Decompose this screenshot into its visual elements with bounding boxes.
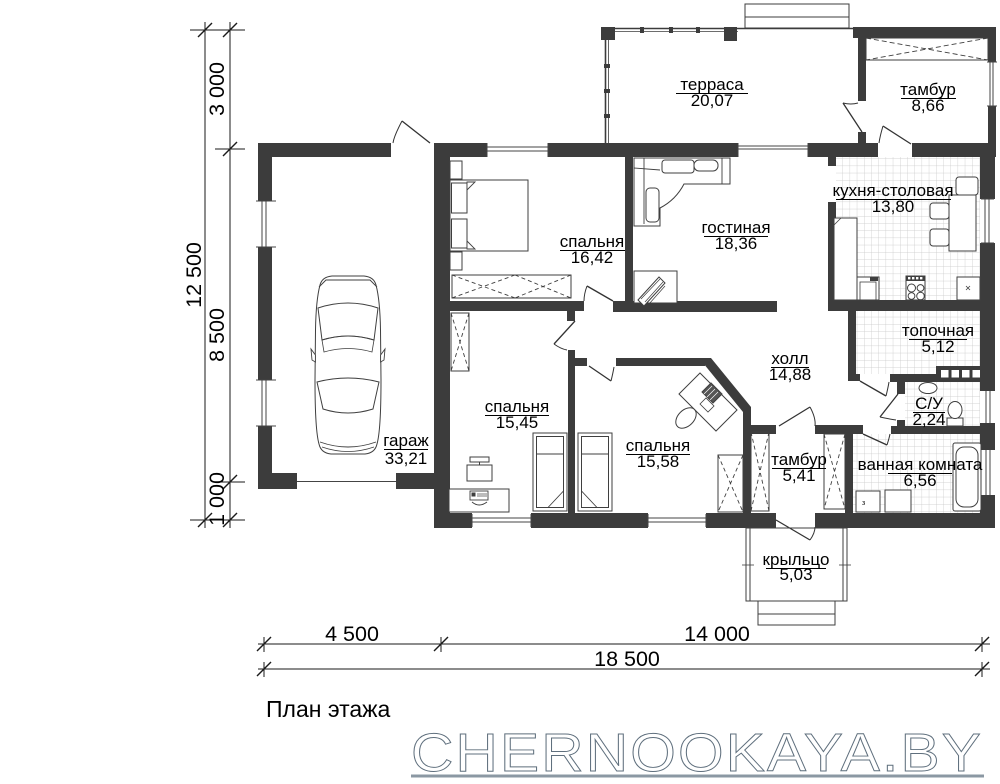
- svg-text:8,66: 8,66: [911, 96, 944, 115]
- svg-text:гараж: гараж: [383, 431, 429, 450]
- svg-text:3 000: 3 000: [205, 62, 229, 116]
- svg-text:2,24: 2,24: [912, 410, 945, 429]
- svg-text:18,36: 18,36: [715, 234, 758, 253]
- svg-text:14 000: 14 000: [684, 622, 750, 646]
- svg-text:5,03: 5,03: [779, 565, 812, 584]
- svg-text:18 500: 18 500: [594, 647, 660, 671]
- svg-text:12 500: 12 500: [182, 242, 206, 308]
- svg-text:з: з: [862, 500, 865, 507]
- svg-text:14,88: 14,88: [769, 365, 812, 384]
- svg-text:13,80: 13,80: [872, 197, 915, 216]
- svg-text:16,42: 16,42: [571, 248, 614, 267]
- svg-text:20,07: 20,07: [691, 91, 734, 110]
- svg-text:6,56: 6,56: [903, 471, 936, 490]
- svg-text:1 000: 1 000: [205, 472, 229, 526]
- svg-text:33,21: 33,21: [385, 449, 428, 468]
- svg-text:15,58: 15,58: [637, 452, 680, 471]
- svg-text:15,45: 15,45: [496, 413, 539, 432]
- svg-text:План этажа: План этажа: [266, 696, 391, 722]
- svg-text:5,12: 5,12: [921, 337, 954, 356]
- svg-text:CHERNOOKAYA.BY: CHERNOOKAYA.BY: [411, 723, 983, 783]
- svg-text:8 500: 8 500: [205, 308, 229, 362]
- svg-text:5,41: 5,41: [782, 466, 815, 485]
- svg-text:4 500: 4 500: [325, 622, 379, 646]
